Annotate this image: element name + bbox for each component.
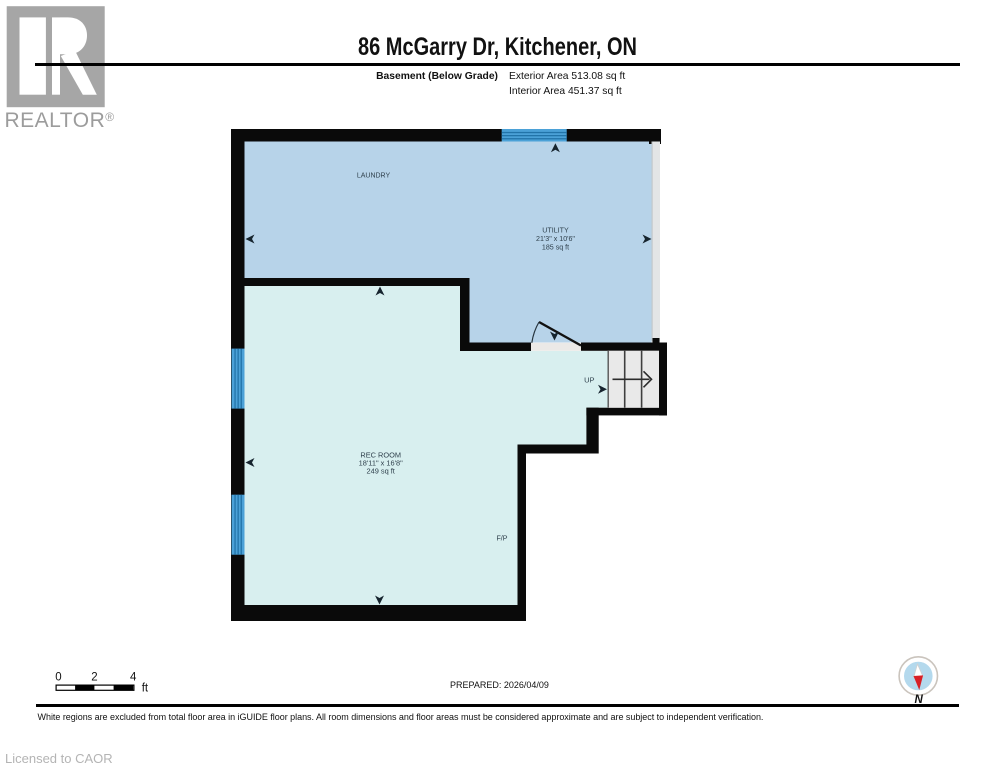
svg-text:UP: UP [584, 376, 594, 385]
svg-text:ft: ft [142, 682, 149, 694]
svg-text:21'3" x 10'6": 21'3" x 10'6" [536, 235, 575, 243]
svg-text:185 sq ft: 185 sq ft [542, 244, 569, 252]
svg-text:UTILITY: UTILITY [542, 227, 569, 235]
svg-text:4: 4 [130, 671, 137, 683]
svg-text:F/P: F/P [496, 535, 507, 543]
svg-text:249 sq ft: 249 sq ft [367, 467, 395, 476]
svg-text:LAUNDRY: LAUNDRY [357, 172, 391, 179]
svg-text:2: 2 [91, 671, 97, 683]
svg-text:0: 0 [55, 671, 61, 683]
